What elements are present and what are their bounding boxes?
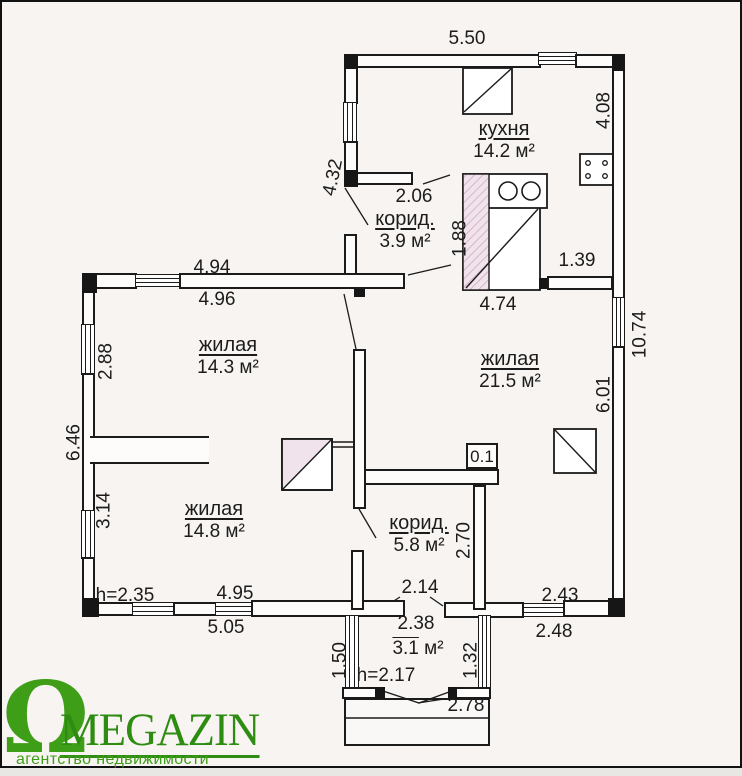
room-label-corridor: корид. 5.8 м² [378, 512, 460, 557]
dimension-label: 2.38 [389, 613, 443, 634]
room-label-living3: жилая 14.8 м² [166, 498, 262, 543]
room-label-hall: корид. 3.9 м² [365, 208, 445, 253]
room-area: 14.2 м² [454, 140, 554, 163]
partition-wall [90, 436, 209, 464]
dimension-label: 2.78 [438, 695, 494, 716]
window [81, 324, 95, 375]
wall-corner [539, 278, 547, 289]
dimension-label: 5.50 [430, 28, 504, 49]
dimension-label: 10.74 [630, 300, 651, 370]
wall-segment [364, 469, 499, 485]
dimension-label: 6.46 [64, 413, 85, 473]
wall-corner [344, 54, 358, 69]
dimension-label: 4.95 [206, 583, 264, 604]
room-label-living1: жилая 14.3 м² [180, 334, 276, 379]
porch-area-unit: м² [424, 638, 443, 659]
wall-segment [351, 550, 364, 610]
dimension-label: 4.96 [185, 289, 249, 310]
room-area: 14.3 м² [180, 356, 276, 379]
dimension-label: 4.94 [180, 257, 244, 278]
room-area: 5.8 м² [378, 534, 460, 557]
dimension-label: 5.05 [196, 617, 256, 638]
logo-tagline: агентство недвижимости [16, 751, 209, 769]
floorplan-page: 5.50 2.06 1.39 4.74 4.94 4.96 2.14 2.38 … [0, 0, 742, 768]
kitchen-vent-symbol [463, 68, 512, 114]
wall-corner [82, 273, 97, 293]
dimension-label: 1.32 [461, 631, 482, 691]
dimension-label: 3.14 [94, 481, 115, 541]
dimension-label: 2.06 [383, 186, 445, 207]
kitchen-stove-symbol [463, 174, 547, 290]
dimension-label: h=2.35 [92, 585, 158, 606]
dimension-label: 1.88 [450, 209, 471, 269]
wall-segment [344, 54, 541, 68]
wall-segment [356, 172, 413, 185]
dimension-label: 6.01 [594, 365, 615, 425]
window [215, 602, 253, 616]
room-name: жилая [462, 348, 558, 370]
room-name: жилая [180, 334, 276, 356]
room-area: 14.8 м² [166, 520, 262, 543]
window [612, 297, 625, 348]
wall-corner [612, 54, 625, 71]
wall-segment [173, 602, 217, 616]
dimension-label: 1.50 [330, 631, 351, 691]
room-name: жилая [166, 498, 262, 520]
dimension-label: 2.88 [96, 332, 117, 392]
stove-symbol-living2 [554, 429, 596, 473]
dimension-label: 2.43 [533, 585, 587, 606]
stove-symbol-center [282, 439, 353, 490]
porch-area-value: 3.1 [392, 638, 418, 659]
wall-segment [251, 600, 405, 617]
dimension-label: 4.74 [462, 294, 534, 315]
dimension-label: 1.39 [548, 250, 606, 271]
room-area: 21.5 м² [462, 370, 558, 393]
post-base [375, 687, 385, 699]
window [135, 274, 181, 287]
room-area: 3.9 м² [365, 230, 445, 253]
room-label-kitchen: кухня 14.2 м² [454, 118, 554, 163]
room-label-porch-area: 3.1 м² [387, 638, 449, 659]
dimension-label: h=2.17 [350, 665, 422, 686]
window [343, 102, 357, 143]
wall-corner [344, 170, 358, 186]
wall-segment [547, 276, 613, 290]
wall-segment [353, 349, 366, 509]
room-name: корид. [365, 208, 445, 230]
closet-area-label: 0.1 [466, 446, 498, 467]
room-name: корид. [378, 512, 460, 534]
wall-segment [473, 485, 486, 610]
electric-panel-symbol [580, 154, 613, 185]
wall-corner [608, 598, 625, 617]
room-name: кухня [454, 118, 554, 140]
wall-tick [354, 289, 365, 297]
dimension-label: 2.14 [393, 577, 447, 598]
dimension-label: 2.48 [527, 621, 581, 642]
window [538, 52, 577, 65]
dimension-label: 4.08 [594, 81, 615, 141]
room-label-living2: жилая 21.5 м² [462, 348, 558, 393]
